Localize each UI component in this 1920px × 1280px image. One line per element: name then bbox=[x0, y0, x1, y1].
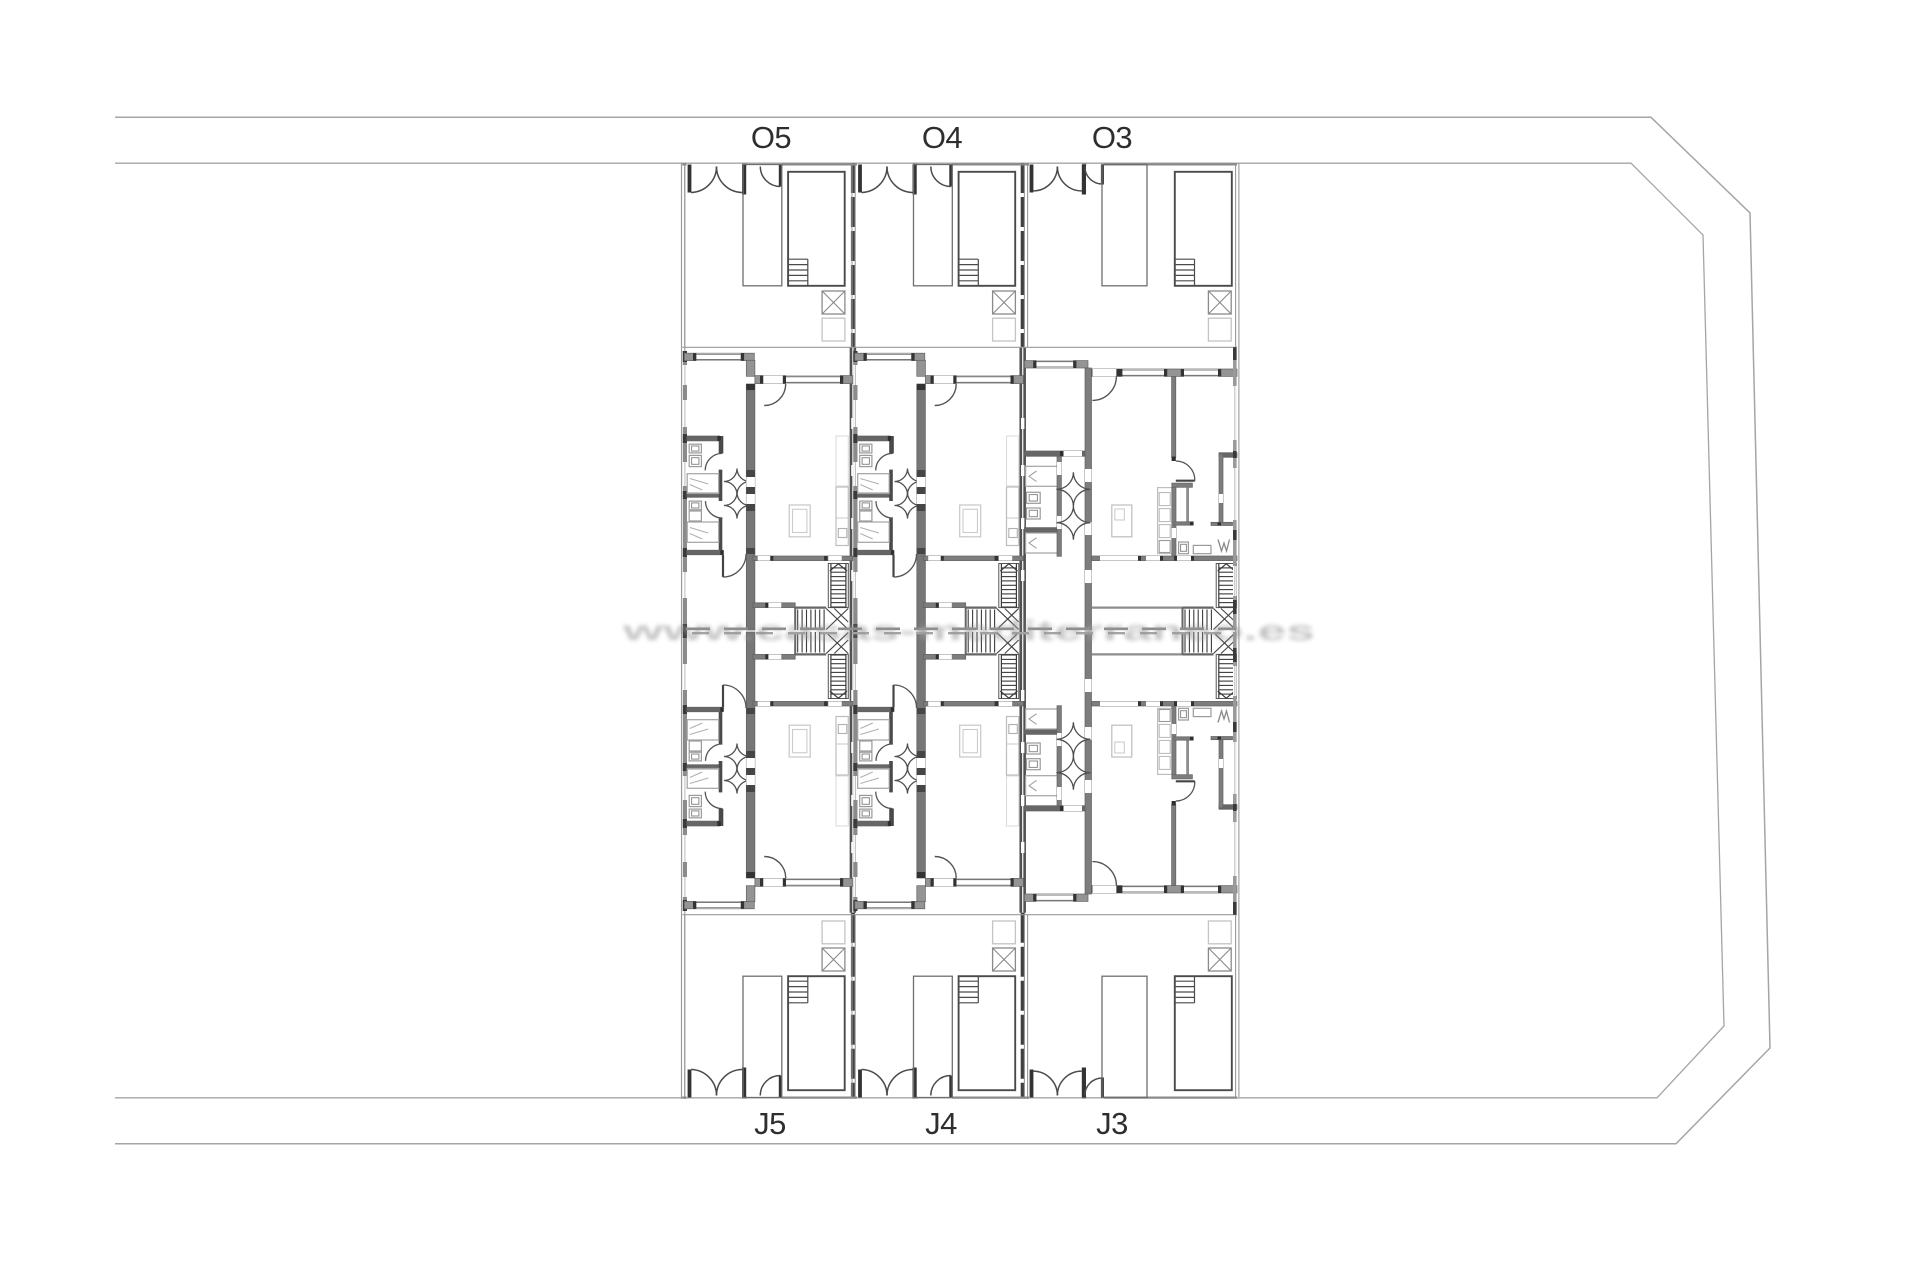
svg-text:O4: O4 bbox=[922, 120, 963, 155]
svg-text:O5: O5 bbox=[751, 120, 791, 155]
svg-text:J4: J4 bbox=[925, 1106, 957, 1141]
svg-text:O3: O3 bbox=[1092, 120, 1132, 155]
svg-text:J5: J5 bbox=[754, 1106, 786, 1141]
svg-text:www.casas-mediterraneo.es: www.casas-mediterraneo.es bbox=[621, 615, 1315, 646]
svg-text:J3: J3 bbox=[1096, 1106, 1128, 1141]
